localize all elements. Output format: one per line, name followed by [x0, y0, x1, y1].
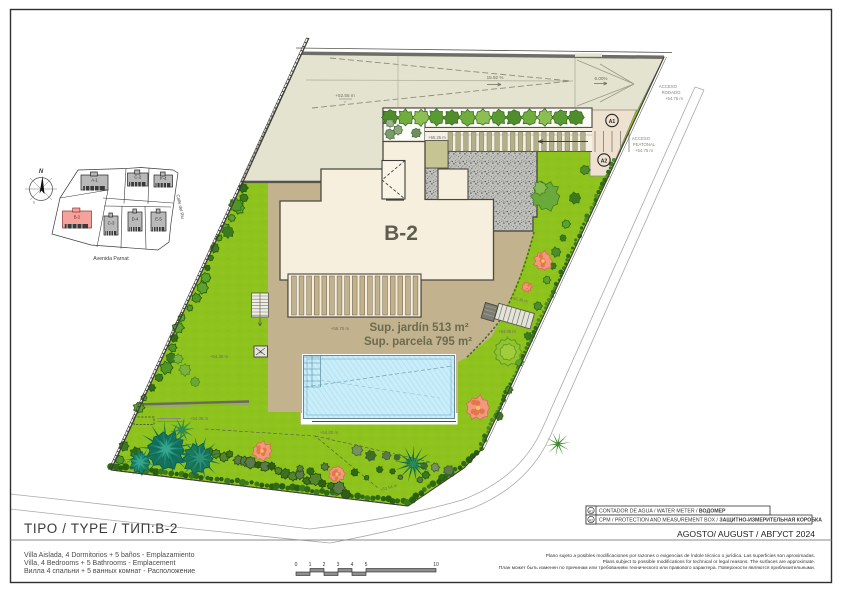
svg-text:10: 10 [433, 562, 439, 568]
svg-text:+54.75 m: +54.75 m [665, 96, 683, 101]
svg-text:ACCESO: ACCESO [659, 84, 678, 89]
svg-text:F-4: F-4 [160, 176, 167, 181]
svg-text:C-2: C-2 [134, 175, 141, 180]
svg-text:C-3: C-3 [108, 221, 115, 226]
svg-text:6.00%: 6.00% [594, 76, 607, 81]
svg-text:+54.35 m: +54.35 m [210, 354, 229, 359]
svg-text:Avenida Parnat: Avenida Parnat [93, 256, 129, 262]
svg-text:CPM / PROTECTION AND MEASUREME: CPM / PROTECTION AND MEASUREMENT BOX / З… [599, 518, 822, 524]
svg-text:4: 4 [351, 562, 354, 568]
svg-text:Villa, 4 Bedrooms + 5 Bathroom: Villa, 4 Bedrooms + 5 Bathrooms - Emplac… [24, 560, 175, 567]
svg-text:+54.05 m: +54.05 m [498, 329, 516, 334]
svg-text:Sup. parcela 795 m²: Sup. parcela 795 m² [364, 336, 472, 348]
svg-text:План может быть изменен по при: План может быть изменен по причинам или … [499, 565, 815, 571]
svg-text:Sup. jardín 513 m²: Sup. jardín 513 m² [369, 322, 468, 334]
svg-text:5: 5 [365, 562, 368, 568]
svg-text:A: A [259, 350, 262, 355]
svg-text:+55.75 m: +55.75 m [331, 326, 350, 331]
svg-text:ACCESO: ACCESO [632, 136, 651, 141]
svg-text:A2: A2 [601, 159, 608, 165]
svg-text:Plans subject to possible modi: Plans subject to possible modifications … [603, 559, 815, 565]
svg-text:+54.75 m: +54.75 m [635, 148, 653, 153]
svg-text:B-2: B-2 [384, 222, 418, 245]
svg-text:A-1: A-1 [91, 178, 98, 183]
svg-text:15.92 %: 15.92 % [487, 75, 504, 80]
svg-text:TIPO / TYPE / ТИП:B-2: TIPO / TYPE / ТИП:B-2 [24, 521, 178, 536]
svg-text:+55.25 m: +55.25 m [428, 135, 446, 140]
svg-text:AGOSTO/ AUGUST / АВГУСТ 2024: AGOSTO/ AUGUST / АВГУСТ 2024 [677, 529, 815, 539]
svg-text:+52.55 m: +52.55 m [335, 93, 354, 98]
svg-text:E-5: E-5 [155, 217, 162, 222]
svg-text:3: 3 [337, 562, 340, 568]
svg-text:N: N [39, 169, 44, 175]
svg-text:2: 2 [323, 562, 326, 568]
svg-text:+54.05 m: +54.05 m [190, 416, 209, 421]
svg-text:Вилла 4 спальни + 5 ванных ком: Вилла 4 спальни + 5 ванных комнат - Расп… [24, 568, 195, 575]
svg-text:PEATONAL: PEATONAL [633, 142, 656, 147]
svg-text:Villa Aislada, 4 Dormitorios +: Villa Aislada, 4 Dormitorios + 5 baños -… [24, 552, 195, 559]
svg-text:A2: A2 [589, 518, 593, 522]
svg-text:D-4: D-4 [132, 217, 139, 222]
svg-text:0: 0 [295, 562, 298, 568]
svg-text:A1: A1 [589, 509, 593, 513]
svg-text:RODADO: RODADO [662, 90, 682, 95]
svg-text:Plano sujeto a posibles modifi: Plano sujeto a posibles modificaciones p… [546, 553, 815, 559]
svg-text:1: 1 [309, 562, 312, 568]
svg-text:+54.00 m: +54.00 m [320, 430, 339, 435]
svg-text:A1: A1 [609, 119, 616, 125]
svg-text:CONTADOR DE AGUA / WATER METER: CONTADOR DE AGUA / WATER METER / ВОДОМЕР [599, 509, 726, 515]
svg-text:B-2: B-2 [74, 215, 81, 220]
